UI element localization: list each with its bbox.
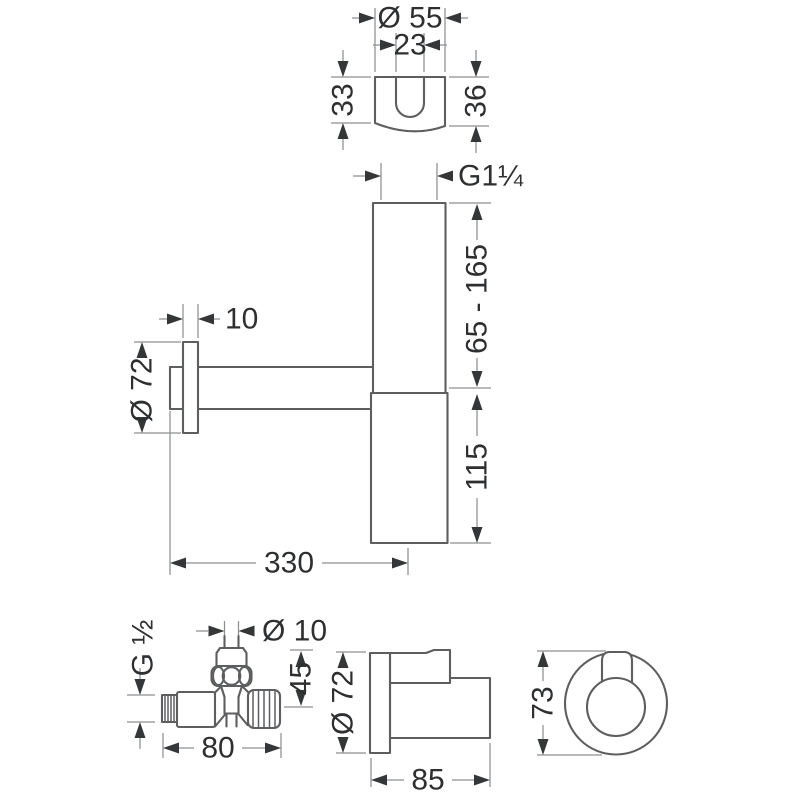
dim-adjustable-height: 65 - 165 bbox=[449, 203, 494, 388]
valve-knob bbox=[248, 690, 280, 728]
outlet-lower-block bbox=[390, 678, 490, 738]
dim-label-valve-spindle-diameter: Ø 10 bbox=[262, 615, 327, 648]
holder-outline bbox=[375, 77, 445, 131]
dim-lower-body-height: 115 bbox=[450, 394, 494, 543]
outlet-front-inner-circle bbox=[587, 678, 645, 736]
dim-label-bracket-left-height: 33 bbox=[327, 83, 360, 116]
dim-inlet-thread: G1¼ bbox=[353, 160, 524, 201]
wall-outlet-front-view: 73 bbox=[527, 651, 668, 755]
dim-label-siphon-flange-thickness: 10 bbox=[225, 303, 258, 336]
dim-right-height: 36 bbox=[449, 50, 493, 153]
angle-valve-view: G ½ Ø 10 45 80 bbox=[127, 615, 328, 765]
dim-left-height: 33 bbox=[327, 50, 372, 150]
dim-valve-length: 80 bbox=[163, 732, 281, 765]
dim-label-valve-inlet-thread: G ½ bbox=[127, 620, 160, 677]
dim-label-siphon-inlet-thread: G1¼ bbox=[458, 160, 524, 193]
holder-top-view: Ø 55 23 33 bbox=[327, 2, 493, 154]
siphon-upper-tube bbox=[373, 203, 446, 393]
dim-label-siphon-adjustable-height: 65 - 165 bbox=[461, 244, 494, 354]
dim-label-valve-length: 80 bbox=[201, 732, 234, 765]
dim-label-siphon-flange-diameter: Ø 72 bbox=[126, 357, 159, 422]
dim-label-bracket-slot-width: 23 bbox=[393, 29, 426, 62]
dim-slot-width: 23 bbox=[373, 29, 447, 73]
dim-label-outlet-flange-diameter: Ø 72 bbox=[327, 670, 360, 735]
siphon-front-view: G1¼ 65 - 165 115 bbox=[126, 160, 525, 580]
valve-spindle-head bbox=[212, 636, 252, 697]
dim-valve-inlet-thread: G ½ bbox=[127, 620, 160, 749]
valve-centre-section bbox=[215, 686, 248, 727]
dim-label-outlet-depth: 85 bbox=[411, 764, 444, 797]
dim-label-outlet-front-height: 73 bbox=[527, 686, 560, 719]
outlet-upper-block bbox=[390, 650, 450, 683]
dim-flange-diameter: Ø 72 bbox=[126, 342, 182, 433]
dim-label-siphon-wall-to-trap-center: 330 bbox=[264, 547, 314, 580]
technical-drawing-page: Ø 55 23 33 bbox=[0, 0, 800, 800]
valve-cap bbox=[217, 648, 247, 666]
dim-label-bracket-right-height: 36 bbox=[460, 84, 493, 117]
valve-collar bbox=[212, 666, 252, 686]
dim-label-valve-height: 45 bbox=[285, 662, 318, 695]
dim-valve-height: 45 bbox=[284, 650, 318, 707]
siphon-lower-cup bbox=[371, 393, 448, 543]
wall-outlet-side-view: Ø 72 85 bbox=[327, 650, 491, 797]
outlet-flange bbox=[370, 653, 390, 753]
dimension-drawing: Ø 55 23 33 bbox=[0, 0, 800, 800]
wall-flange bbox=[183, 342, 198, 433]
dim-label-siphon-lower-body-height: 115 bbox=[461, 443, 494, 491]
valve-body bbox=[177, 692, 215, 727]
dim-valve-spindle-diameter: Ø 10 bbox=[196, 615, 327, 648]
dim-flange-thickness: 10 bbox=[159, 303, 258, 339]
dim-outlet-flange-diameter: Ø 72 bbox=[327, 652, 367, 753]
